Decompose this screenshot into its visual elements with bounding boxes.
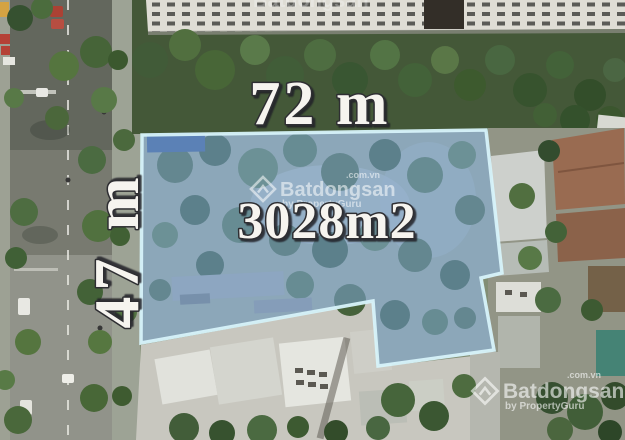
haze-overlay bbox=[0, 0, 625, 440]
aerial-photo-canvas: Batdongsan .com.vn Batdongsan by Propert… bbox=[0, 0, 625, 440]
aerial-photo: Batdongsan .com.vn Batdongsan by Propert… bbox=[0, 0, 625, 440]
